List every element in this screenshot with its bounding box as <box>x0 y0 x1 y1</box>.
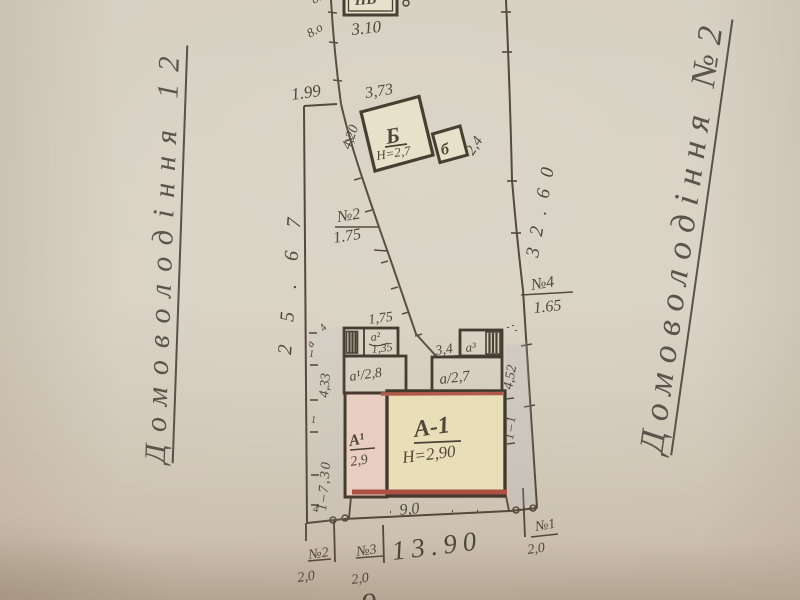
svg-text:№1: №1 <box>533 517 556 535</box>
svg-text:2,0: 2,0 <box>526 541 545 558</box>
svg-text:№2: №2 <box>335 206 361 227</box>
svg-text:б: б <box>439 140 451 158</box>
svg-text:1.65: 1.65 <box>533 297 563 317</box>
svg-text:25.67: 25.67 <box>274 194 307 355</box>
svg-text:2,4: 2,4 <box>463 133 487 158</box>
svg-text:4,20: 4,20 <box>340 123 362 151</box>
svg-text:№3: №3 <box>354 542 377 560</box>
svg-text:2,0: 2,0 <box>350 571 369 588</box>
svg-text:8.o: 8.o <box>304 19 326 41</box>
svg-text:3,73: 3,73 <box>363 81 394 102</box>
svg-text:1,35: 1,35 <box>371 340 393 356</box>
svg-text:А¹: А¹ <box>347 430 366 450</box>
svg-text:1.75: 1.75 <box>332 226 362 247</box>
svg-text:Н=2,7: Н=2,7 <box>374 143 412 163</box>
svg-text:4,52: 4,52 <box>501 364 520 391</box>
svg-text:а³: а³ <box>465 339 478 355</box>
svg-text:2,9: 2,9 <box>349 452 369 470</box>
svg-text:32.60: 32.60 <box>522 154 561 260</box>
svg-text:3.10: 3.10 <box>349 17 382 39</box>
svg-text:а¹/2,8: а¹/2,8 <box>348 366 382 385</box>
svg-text:Н=2,90: Н=2,90 <box>400 442 457 468</box>
svg-text:1–1: 1–1 <box>501 413 519 440</box>
svg-text:13.90: 13.90 <box>390 525 484 566</box>
svg-text:1.99: 1.99 <box>290 81 323 104</box>
svg-text:1: 1 <box>311 415 316 426</box>
svg-text:9,0: 9,0 <box>399 500 421 519</box>
svg-text:8.o: 8.o <box>308 0 330 7</box>
svg-text:3,4: 3,4 <box>433 342 453 359</box>
svg-text:а: а <box>304 338 317 349</box>
svg-text:А-1: А-1 <box>410 412 451 443</box>
svg-text:4,33: 4,33 <box>317 373 334 399</box>
svg-text:2,0: 2,0 <box>296 569 315 586</box>
svg-text:№4: №4 <box>529 274 555 295</box>
svg-text:1: 1 <box>309 349 314 360</box>
svg-text:а/2,7: а/2,7 <box>439 368 473 388</box>
svg-text:4: 4 <box>317 322 330 334</box>
svg-text:4: 4 <box>313 503 319 515</box>
svg-text:1,75: 1,75 <box>367 310 393 328</box>
svg-text:№2: №2 <box>306 545 329 563</box>
svg-text:НВ: НВ <box>353 0 377 9</box>
svg-text:9: 9 <box>361 587 376 600</box>
